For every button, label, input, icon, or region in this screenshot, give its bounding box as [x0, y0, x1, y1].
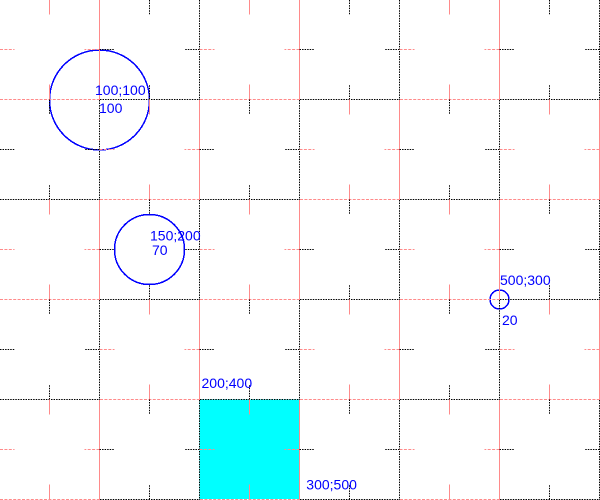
svg-text:200;400: 200;400	[202, 375, 253, 391]
svg-text:100: 100	[99, 100, 123, 116]
svg-text:20: 20	[502, 312, 518, 328]
svg-text:500;300: 500;300	[500, 272, 551, 288]
svg-text:300;500: 300;500	[306, 476, 357, 492]
svg-text:100;100: 100;100	[95, 82, 146, 98]
svg-text:70: 70	[152, 242, 168, 258]
